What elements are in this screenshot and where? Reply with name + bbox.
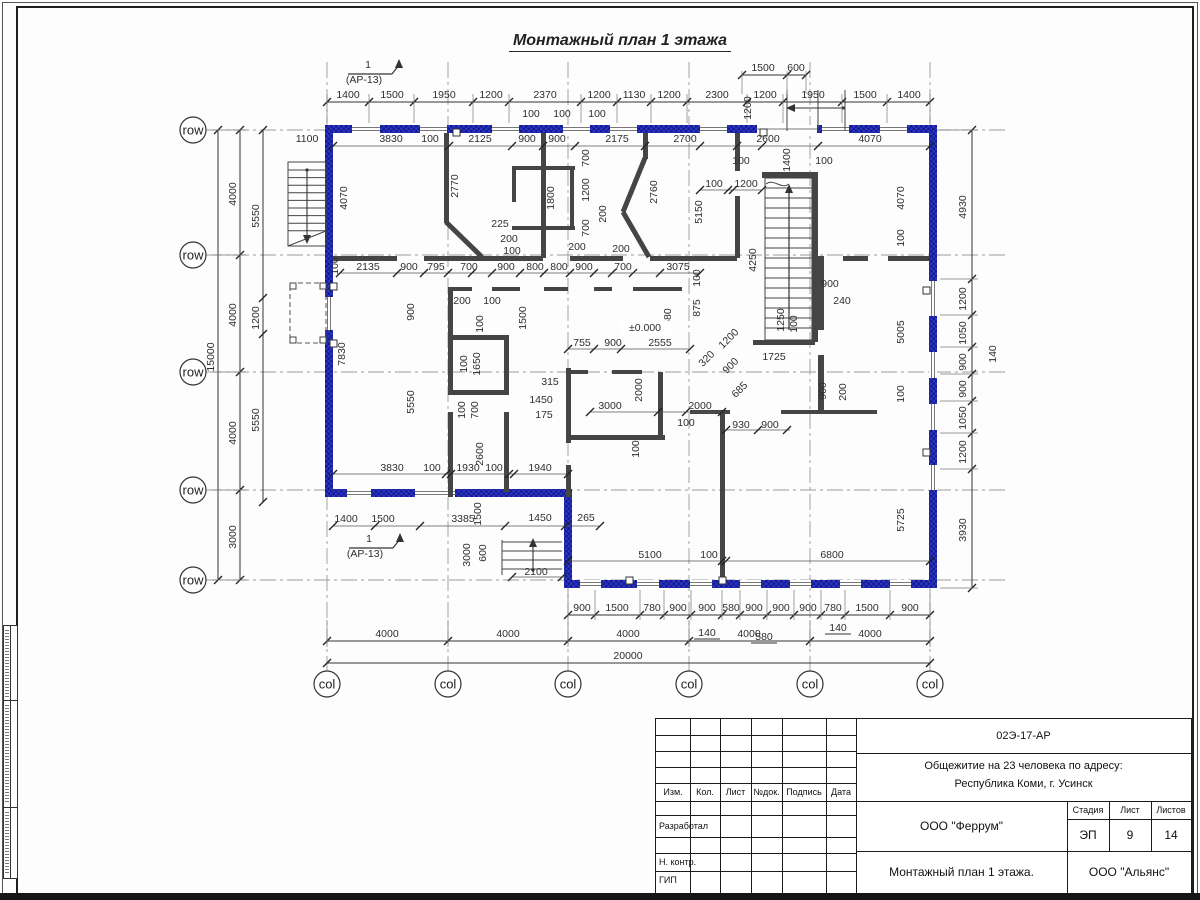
interior-wall	[492, 287, 520, 291]
interior-wall	[544, 287, 568, 291]
axis-label-А: row	[183, 573, 205, 588]
dim-label: 100	[423, 462, 441, 474]
window	[690, 580, 712, 588]
dim-label: 900	[575, 261, 593, 273]
dim-label: 1500	[371, 513, 395, 525]
dim-label: 795	[427, 261, 445, 273]
dim-label: 700	[469, 401, 481, 419]
dim-label: 900	[957, 353, 969, 371]
porch-post	[290, 283, 296, 289]
dim-label: 900	[548, 133, 566, 145]
tb-col-kol: Кол.	[690, 783, 720, 801]
dim-label: 1100	[296, 133, 319, 145]
dim-label: 755	[573, 337, 591, 349]
window	[420, 125, 447, 133]
dim-label: 1950	[801, 89, 825, 101]
window	[610, 125, 637, 133]
porch-post	[320, 337, 326, 343]
window	[840, 580, 861, 588]
axis-label-Б: row	[183, 483, 205, 498]
dim-label: 700	[580, 219, 592, 237]
interior-wall	[504, 335, 509, 395]
dim-label: 1200	[734, 178, 758, 190]
dim-label: 100	[677, 417, 695, 429]
dim-label: (АР-13)	[346, 74, 382, 86]
dim-label: 1500	[855, 602, 879, 614]
wall-stub	[626, 577, 633, 584]
dim-label: 900	[745, 602, 763, 614]
dim-label: 100	[421, 133, 439, 145]
axis-label-В: row	[183, 365, 205, 380]
dim-label: 5550	[250, 408, 262, 432]
interior-wall	[753, 340, 815, 345]
dim-label: 4000	[858, 628, 882, 640]
window	[790, 580, 811, 588]
dim-label: 3830	[380, 462, 404, 474]
dim-label: 7830	[336, 342, 348, 366]
dim-label: 700	[580, 149, 592, 167]
tb-col-list: Лист	[720, 783, 751, 801]
side-stamp-text	[5, 630, 9, 697]
dim-label: 900	[761, 419, 779, 431]
dim-label: 2175	[605, 133, 629, 145]
dim-label: 1800	[545, 186, 557, 210]
dim-label: 800	[526, 261, 544, 273]
dim-label: 2700	[673, 133, 697, 145]
dim-label: 2300	[705, 89, 729, 101]
tb-col-podpis: Подпись	[782, 783, 826, 801]
title-block: Изм. Кол. Лист №док. Подпись Дата Разраб…	[655, 718, 1192, 894]
dim-label: 4000	[496, 628, 520, 640]
dim-label: 1500	[472, 502, 484, 526]
tb-company: ООО "Альянс"	[1067, 851, 1191, 893]
interior-wall	[566, 465, 571, 497]
dim-label: 5005	[895, 320, 907, 344]
dim-label: 140	[698, 627, 716, 639]
interior-wall	[512, 166, 516, 202]
dim-label: 100	[788, 315, 800, 333]
dim-label: 100	[456, 401, 468, 419]
dim-label: 4250	[747, 248, 759, 272]
dim-label: 1450	[528, 512, 552, 524]
dim-label: 5725	[895, 508, 907, 532]
dim-label: 900	[400, 261, 418, 273]
tb-row-razrabotal: Разработал	[656, 815, 754, 837]
dim-label: 900	[772, 602, 790, 614]
dim-label: 1500	[751, 62, 775, 74]
tb-row-nkontr: Н. контр.	[656, 853, 754, 871]
interior-wall	[594, 287, 612, 291]
dim-label: 1250	[775, 308, 787, 332]
dim-label: 2000	[688, 400, 712, 412]
dim-label: 200	[568, 241, 586, 253]
wall-stub	[719, 577, 726, 584]
dim-label: 1400	[336, 89, 360, 101]
dim-label: 1450	[529, 394, 553, 406]
dim-label: 240	[833, 295, 851, 307]
dim-label: 200	[453, 295, 471, 307]
dim-label: 900	[497, 261, 515, 273]
window	[890, 580, 911, 588]
sheet-bottom-edge	[0, 893, 1200, 900]
wall-stub	[923, 449, 930, 456]
side-stamp-3	[3, 807, 18, 879]
dim-label: 2135	[356, 261, 380, 273]
stair-break-line	[766, 182, 789, 185]
dim-label: 900	[901, 602, 919, 614]
tb-drawing-title: Монтажный план 1 этажа.	[856, 851, 1067, 893]
dim-label: 100	[588, 108, 606, 120]
dim-label: 1950	[432, 89, 456, 101]
dim-label: 1400	[897, 89, 921, 101]
dim-label: 3830	[379, 133, 403, 145]
level-mark: ±0.000	[629, 322, 661, 334]
dim-label: 320	[696, 348, 717, 369]
window	[700, 125, 727, 133]
dim-label: 5150	[693, 200, 705, 224]
interior-wall	[762, 172, 818, 178]
interior-wall	[658, 372, 663, 437]
dim-label: 2125	[468, 133, 492, 145]
tb-col-izm: Изм.	[656, 783, 690, 801]
dim-label: 1940	[528, 462, 552, 474]
dim-label: 100	[503, 245, 521, 257]
page-title: Монтажный план 1 этажа	[500, 32, 740, 50]
interior-wall	[448, 412, 453, 497]
dim-label: 700	[614, 261, 632, 273]
dim-label: 1400	[781, 148, 793, 172]
dim-label: 900	[698, 602, 716, 614]
dim-label: 4000	[737, 628, 761, 640]
dim-label: 140	[829, 622, 847, 634]
dim-label: 1500	[605, 602, 629, 614]
dim-label: 5550	[405, 390, 417, 414]
dim-label: 1050	[957, 406, 969, 430]
dim-label: 2760	[648, 180, 660, 204]
window	[740, 580, 761, 588]
window	[929, 352, 937, 378]
interior-wall	[612, 370, 642, 374]
dim-label: 900	[720, 355, 741, 376]
dim-label: 5100	[638, 549, 662, 561]
dim-label: 4070	[858, 133, 882, 145]
dim-label: 100	[732, 155, 750, 167]
dim-label: 900	[799, 602, 817, 614]
interior-wall-diagonal	[623, 158, 645, 212]
dim-label: 100	[895, 229, 907, 247]
interior-wall	[450, 390, 509, 395]
interior-wall	[720, 414, 725, 580]
dim-label: 800	[550, 261, 568, 273]
dim-label: 4000	[375, 628, 399, 640]
dim-label: 100	[485, 462, 503, 474]
dim-label: 1130	[623, 89, 646, 101]
tb-stage-value: ЭП	[1067, 819, 1109, 851]
interior-wall	[570, 166, 574, 228]
side-stamp-2	[3, 700, 18, 809]
interior-wall	[450, 335, 509, 340]
dim-label: 100	[895, 385, 907, 403]
interior-wall	[843, 256, 868, 261]
dim-label: 2370	[533, 89, 557, 101]
dim-label: 4070	[895, 186, 907, 210]
dim-label: 1200	[580, 178, 592, 202]
porch-post	[290, 337, 296, 343]
tb-stage-label: Стадия	[1067, 801, 1109, 819]
axis-label-5: col	[802, 677, 819, 692]
dim-label: 1500	[517, 306, 529, 330]
dim-label: 200	[612, 243, 630, 255]
dim-label: 100	[700, 549, 718, 561]
dim-label: 3000	[461, 543, 473, 567]
window	[929, 404, 937, 430]
dim-label: 200	[837, 383, 849, 401]
interior-wall	[512, 166, 575, 170]
axis-label-1: col	[319, 677, 336, 692]
dim-label: 225	[491, 218, 509, 230]
dim-label: 2100	[524, 566, 548, 578]
dim-label: 1050	[957, 321, 969, 345]
dim-label: 685	[729, 379, 750, 400]
interior-wall	[504, 412, 509, 492]
tb-sheet-value: 9	[1109, 819, 1151, 851]
tb-row-gip: ГИП	[656, 871, 754, 889]
side-stamp-text	[5, 812, 9, 874]
dim-label: 1200	[657, 89, 681, 101]
dim-label: 780	[643, 602, 661, 614]
dim-label: 1200	[957, 440, 969, 464]
axis-label-4: col	[681, 677, 698, 692]
window	[637, 580, 659, 588]
dim-label: 1200	[742, 96, 754, 120]
tb-org: ООО "Феррум"	[856, 801, 1067, 851]
dim-label: 20000	[613, 650, 642, 662]
dim-label: 1200	[753, 89, 777, 101]
dim-label: 900	[518, 133, 536, 145]
dim-label: 5550	[250, 204, 262, 228]
tb-col-ndok: №док.	[751, 783, 782, 801]
wall-stub	[330, 283, 337, 290]
dim-label: 1400	[334, 513, 358, 525]
axis-label-Д: row	[183, 123, 205, 138]
dim-label: 100	[553, 108, 571, 120]
dim-label: (АР-13)	[347, 548, 383, 560]
dim-label: 4070	[338, 186, 350, 210]
interior-wall	[888, 256, 929, 261]
window	[580, 580, 601, 588]
window	[563, 125, 590, 133]
dim-label: 1650	[471, 352, 483, 376]
side-stamp-1	[3, 625, 18, 702]
dim-label: 100	[705, 178, 723, 190]
dim-label: 900	[957, 380, 969, 398]
axis-label-3: col	[560, 677, 577, 692]
dim-label: 4000	[227, 182, 239, 206]
dim-label: 100	[458, 355, 470, 373]
interior-wall	[512, 226, 575, 230]
dim-label: 1	[365, 59, 371, 71]
dim-label: 1	[366, 533, 372, 545]
dim-label: 4000	[227, 303, 239, 327]
dim-label: 1725	[762, 351, 786, 363]
dim-label: 1200	[716, 326, 741, 351]
dim-label: 3930	[957, 518, 969, 542]
dim-label: 875	[691, 299, 703, 317]
side-stamp-text	[5, 705, 9, 804]
dim-label: 15000	[205, 342, 217, 371]
dim-label: 3000	[227, 525, 239, 549]
wall-stub	[453, 129, 460, 136]
dim-label: 900	[573, 602, 591, 614]
dim-label: 265	[577, 512, 595, 524]
axis-label-2: col	[440, 677, 457, 692]
window	[352, 125, 380, 133]
drawing-sheet: 1400150019501200237012001130120023001200…	[0, 0, 1200, 900]
tb-sheets-value: 14	[1151, 819, 1191, 851]
interior-wall	[568, 435, 665, 440]
dim-label: 780	[824, 602, 842, 614]
tb-sheet-label: Лист	[1109, 801, 1151, 819]
window	[929, 281, 937, 316]
window	[347, 489, 371, 497]
dim-label: 1930	[456, 462, 480, 474]
window	[492, 125, 519, 133]
dim-label: 2000	[633, 378, 645, 402]
interior-wall-diagonal	[446, 222, 482, 257]
dim-label: 580	[722, 602, 740, 614]
dim-label: 100	[815, 155, 833, 167]
dim-label: 700	[460, 261, 478, 273]
dim-label: 3000	[598, 400, 622, 412]
dim-label: 4000	[616, 628, 640, 640]
porch-dashed	[290, 283, 326, 343]
tb-sheets-label: Листов	[1151, 801, 1191, 819]
dim-label: 2770	[449, 174, 461, 198]
dim-label: 1500	[380, 89, 404, 101]
dim-label: 100	[691, 269, 703, 287]
dim-label: 100	[329, 257, 341, 275]
dim-label: 200	[597, 205, 609, 223]
dim-label: 1500	[853, 89, 877, 101]
interior-wall	[735, 196, 740, 258]
dim-label: 900	[669, 602, 687, 614]
interior-wall	[812, 172, 818, 342]
interior-wall	[650, 256, 737, 261]
dim-label: 2555	[648, 337, 672, 349]
interior-wall	[633, 287, 682, 291]
dim-label: 4000	[227, 421, 239, 445]
dim-label: 1200	[587, 89, 611, 101]
dim-label: 1200	[957, 287, 969, 311]
dim-label: 100	[474, 315, 486, 333]
dim-label: 4930	[957, 195, 969, 219]
interior-wall	[781, 410, 877, 414]
dim-label: 930	[732, 419, 750, 431]
dim-label: 2600	[756, 133, 780, 145]
wall-stub	[923, 287, 930, 294]
interior-wall	[566, 368, 571, 443]
arrow-head	[395, 59, 403, 68]
dim-label: 315	[541, 376, 559, 388]
dim-label: 600	[477, 544, 489, 562]
dim-label: 100	[483, 295, 501, 307]
tb-doc-code: 02Э-17-АР	[856, 719, 1191, 753]
interior-wall	[818, 256, 824, 330]
dim-label: 100	[522, 108, 540, 120]
tb-project-line2: Республика Коми, г. Усинск	[856, 773, 1191, 795]
axis-label-6: col	[922, 677, 939, 692]
tb-col-data: Дата	[826, 783, 856, 801]
dim-label: 175	[535, 409, 553, 421]
dim-label: 900	[604, 337, 622, 349]
dim-label: 600	[787, 62, 805, 74]
dim-label: 200	[500, 233, 518, 245]
dim-label: 100	[630, 440, 642, 458]
dim-label: 3075	[666, 261, 690, 273]
interior-wall	[568, 370, 588, 374]
window	[929, 465, 937, 490]
arrow-head	[396, 533, 404, 542]
dim-label: 1200	[250, 306, 262, 330]
porch-post	[320, 283, 326, 289]
window	[880, 125, 907, 133]
dim-label: 900	[821, 278, 839, 290]
dim-label: 140	[987, 345, 999, 363]
dim-label: 1200	[479, 89, 503, 101]
dim-label: 6800	[820, 549, 844, 561]
axis-label-Г: row	[183, 248, 205, 263]
dim-label: 900	[817, 382, 829, 400]
dim-label: 900	[405, 303, 417, 321]
